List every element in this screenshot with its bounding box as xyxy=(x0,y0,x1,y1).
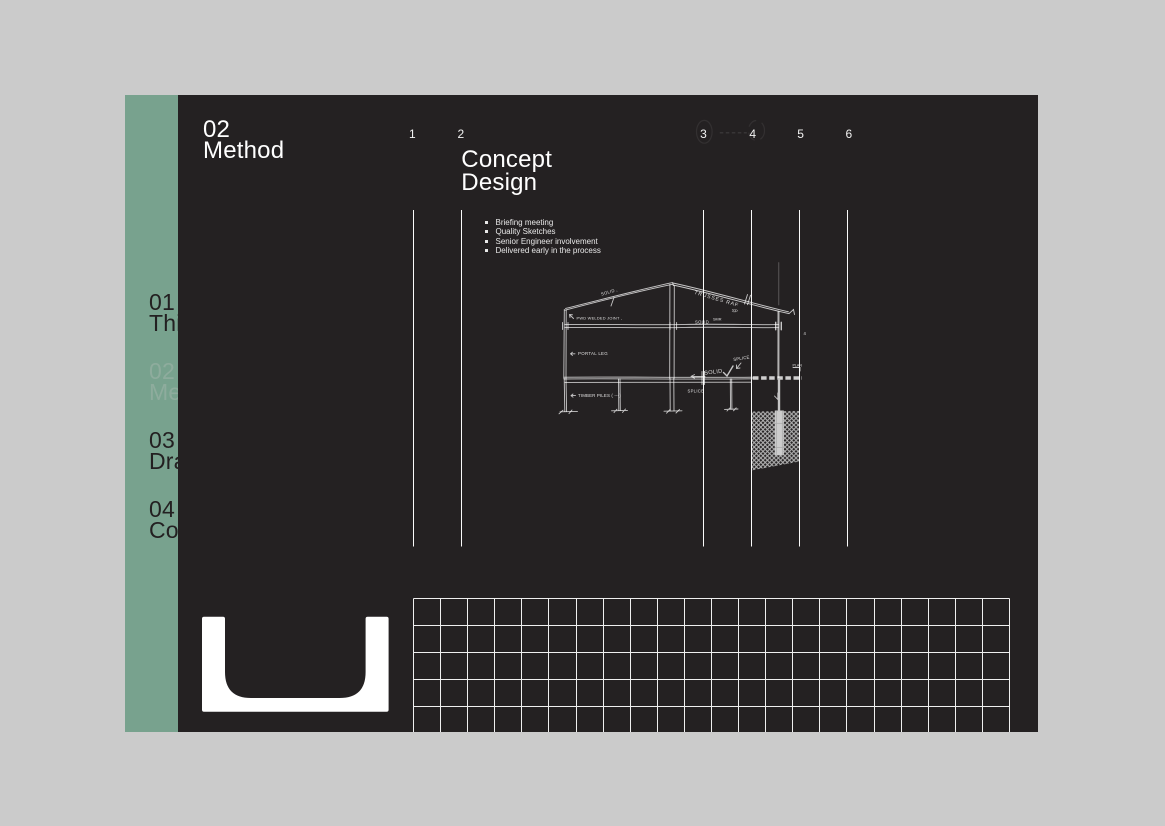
svg-text:SOLID ,: SOLID , xyxy=(600,287,618,296)
svg-text:SP: SP xyxy=(731,307,738,313)
svg-text:TIMBER PILES ( ---): TIMBER PILES ( ---) xyxy=(578,393,621,398)
svg-text:PWD WELDED JOINT ,: PWD WELDED JOINT , xyxy=(577,315,623,320)
svg-text:SOLID: SOLID xyxy=(704,368,723,376)
svg-text:SOLID: SOLID xyxy=(695,319,709,324)
svg-text:4: 4 xyxy=(804,331,807,336)
svg-text:SPLICE: SPLICE xyxy=(688,388,705,393)
svg-text:PORTAL LEG: PORTAL LEG xyxy=(578,351,608,356)
svg-text:SMR: SMR xyxy=(713,317,722,321)
svg-text:PLAN: PLAN xyxy=(793,363,803,367)
svg-text:SPLICE: SPLICE xyxy=(733,354,750,362)
